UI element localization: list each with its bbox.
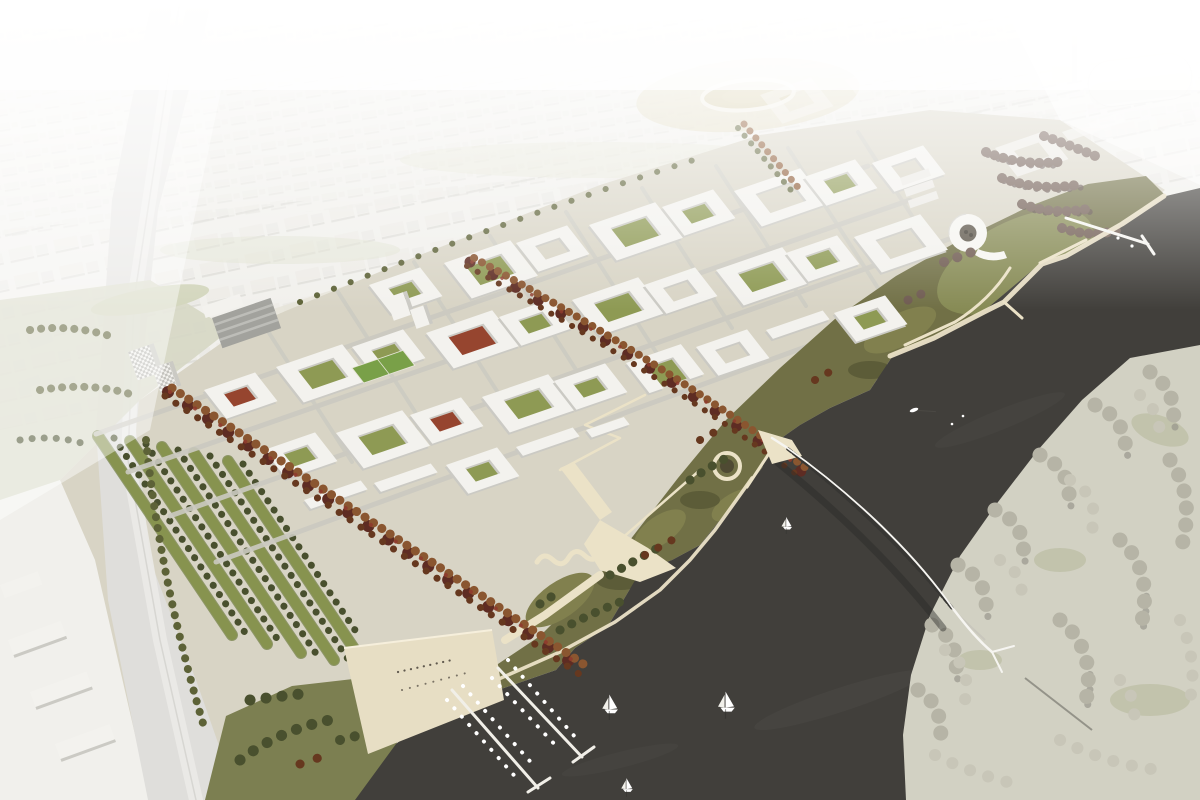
masterplan-canvas (0, 0, 1200, 800)
masterplan-rendering (0, 0, 1200, 800)
swan (951, 423, 954, 426)
swan (962, 415, 965, 418)
